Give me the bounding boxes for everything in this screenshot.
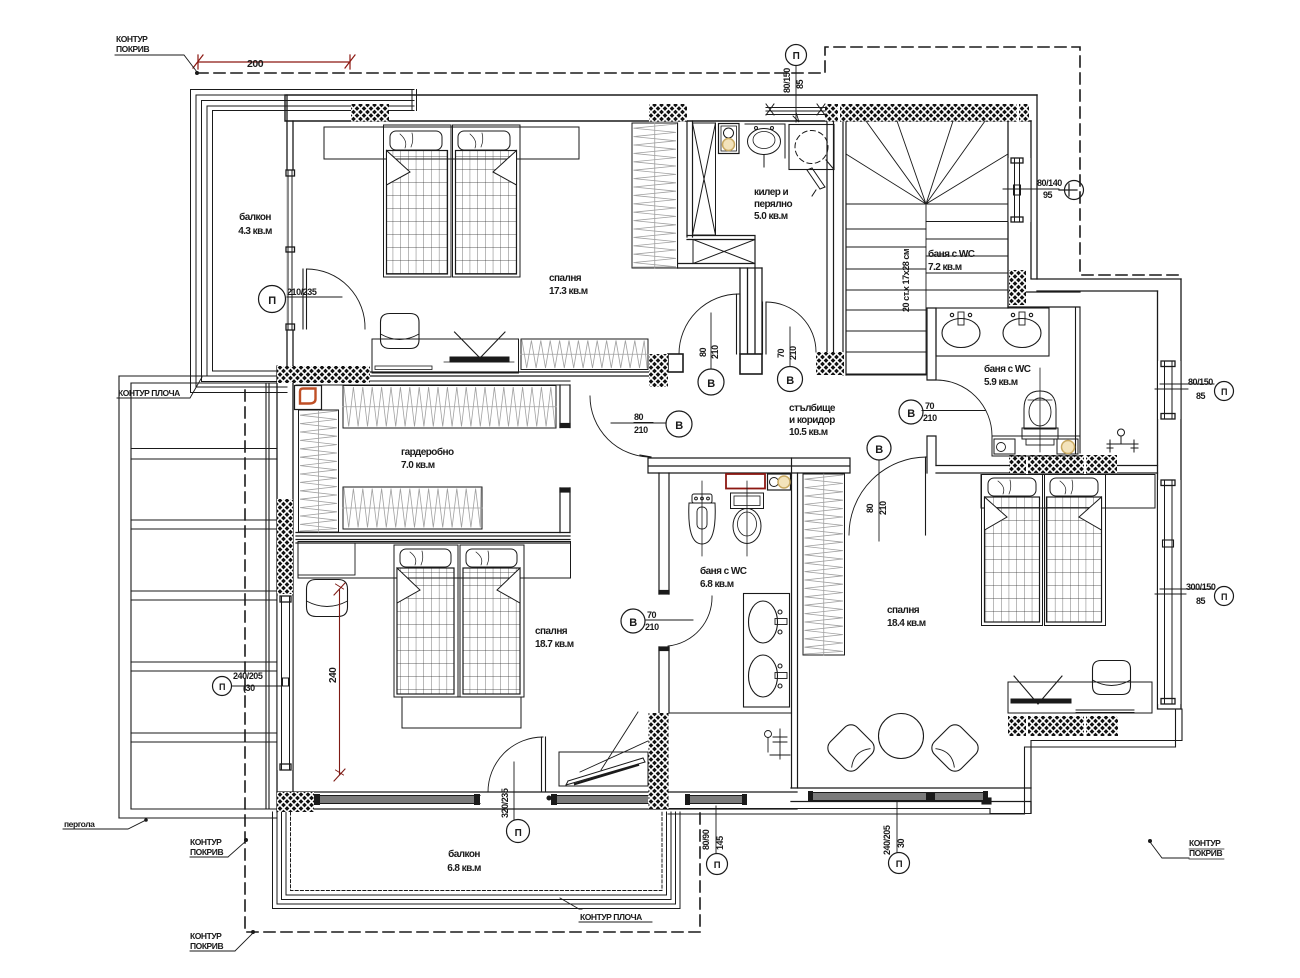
svg-text:гардеробно: гардеробно (401, 446, 454, 458)
svg-text:18.7 кв.м: 18.7 кв.м (535, 639, 574, 650)
svg-text:320/235: 320/235 (500, 788, 510, 818)
svg-text:240/205: 240/205 (233, 671, 263, 681)
svg-text:210: 210 (645, 622, 659, 632)
svg-text:70: 70 (776, 348, 786, 358)
svg-text:В: В (907, 408, 915, 420)
svg-text:П: П (515, 828, 522, 839)
svg-text:КОНТУР: КОНТУР (116, 34, 148, 44)
svg-text:килер и: килер и (754, 187, 789, 198)
svg-text:210/235: 210/235 (287, 287, 317, 297)
svg-text:КОНТУР ПЛОЧА: КОНТУР ПЛОЧА (580, 912, 642, 922)
svg-text:18.4 кв.м: 18.4 кв.м (887, 618, 926, 629)
svg-text:спалня: спалня (535, 626, 568, 637)
svg-text:ПОКРИВ: ПОКРИВ (116, 44, 149, 54)
svg-text:П: П (268, 295, 276, 307)
svg-text:П: П (1221, 592, 1227, 602)
svg-text:80/150: 80/150 (782, 68, 792, 93)
svg-text:КОНТУР: КОНТУР (190, 837, 222, 847)
svg-text:30: 30 (896, 838, 906, 848)
svg-text:80: 80 (698, 347, 708, 357)
svg-text:240: 240 (328, 667, 339, 683)
svg-text:95: 95 (1043, 190, 1053, 200)
svg-text:210: 210 (634, 425, 648, 435)
svg-text:85: 85 (1196, 596, 1206, 606)
svg-text:спалня: спалня (887, 605, 920, 616)
svg-text:80: 80 (865, 503, 875, 513)
svg-text:6.8 кв.м: 6.8 кв.м (447, 863, 481, 874)
svg-text:балкон: балкон (448, 848, 480, 860)
svg-text:4.3 кв.м: 4.3 кв.м (238, 226, 272, 237)
svg-text:70: 70 (925, 401, 935, 411)
svg-text:300/150: 300/150 (1186, 582, 1216, 592)
svg-text:КОНТУР ПЛОЧА: КОНТУР ПЛОЧА (118, 388, 180, 398)
svg-text:7.0 кв.м: 7.0 кв.м (401, 460, 435, 471)
svg-text:ПОКРИВ: ПОКРИВ (190, 941, 223, 951)
svg-text:5.9 кв.м: 5.9 кв.м (984, 377, 1018, 388)
svg-text:баня с WC: баня с WC (928, 248, 975, 260)
svg-text:П: П (714, 860, 721, 871)
svg-text:80: 80 (634, 412, 644, 422)
svg-text:П: П (896, 859, 903, 870)
svg-text:П: П (219, 682, 225, 692)
svg-text:(30: (30 (243, 683, 255, 693)
svg-text:КОНТУР: КОНТУР (190, 931, 222, 941)
svg-text:В: В (629, 617, 637, 629)
svg-text:В: В (707, 378, 715, 390)
svg-text:КОНТУР: КОНТУР (1189, 838, 1221, 848)
svg-text:В: В (786, 375, 794, 387)
svg-text:балкон: балкон (239, 211, 271, 223)
svg-text:пергола: пергола (64, 819, 95, 829)
svg-text:В: В (875, 444, 883, 456)
svg-text:240/205: 240/205 (882, 825, 892, 855)
svg-text:10.5 кв.м: 10.5 кв.м (789, 427, 828, 438)
svg-text:П: П (1221, 387, 1227, 397)
svg-text:210: 210 (878, 501, 888, 515)
svg-text:20 ст.х 17х28 см: 20 ст.х 17х28 см (901, 248, 911, 312)
svg-text:70: 70 (647, 610, 657, 620)
svg-text:210: 210 (923, 413, 937, 423)
svg-text:80/150: 80/150 (1188, 377, 1213, 387)
svg-text:П: П (793, 51, 800, 62)
svg-text:210: 210 (710, 345, 720, 359)
svg-text:7.2 кв.м: 7.2 кв.м (928, 262, 962, 273)
svg-text:145: 145 (715, 836, 725, 850)
svg-text:баня с WC: баня с WC (984, 363, 1031, 375)
svg-text:ПОКРИВ: ПОКРИВ (1189, 848, 1222, 858)
svg-text:6.8 кв.м: 6.8 кв.м (700, 579, 734, 590)
svg-text:85: 85 (1196, 391, 1206, 401)
svg-text:баня с WC: баня с WC (700, 565, 747, 577)
svg-text:и коридор: и коридор (789, 415, 835, 426)
svg-text:перялно: перялно (754, 199, 793, 210)
svg-text:В: В (675, 420, 683, 432)
svg-text:5.0 кв.м: 5.0 кв.м (754, 211, 788, 222)
svg-text:210: 210 (788, 346, 798, 360)
svg-text:80/140: 80/140 (1037, 178, 1062, 188)
svg-text:85: 85 (795, 79, 805, 89)
svg-text:ПОКРИВ: ПОКРИВ (190, 847, 223, 857)
svg-text:80/90: 80/90 (701, 829, 711, 850)
svg-text:спалня: спалня (549, 273, 582, 284)
svg-text:стълбище: стълбище (789, 402, 836, 414)
svg-text:17.3 кв.м: 17.3 кв.м (549, 286, 588, 297)
svg-text:200: 200 (247, 58, 264, 70)
